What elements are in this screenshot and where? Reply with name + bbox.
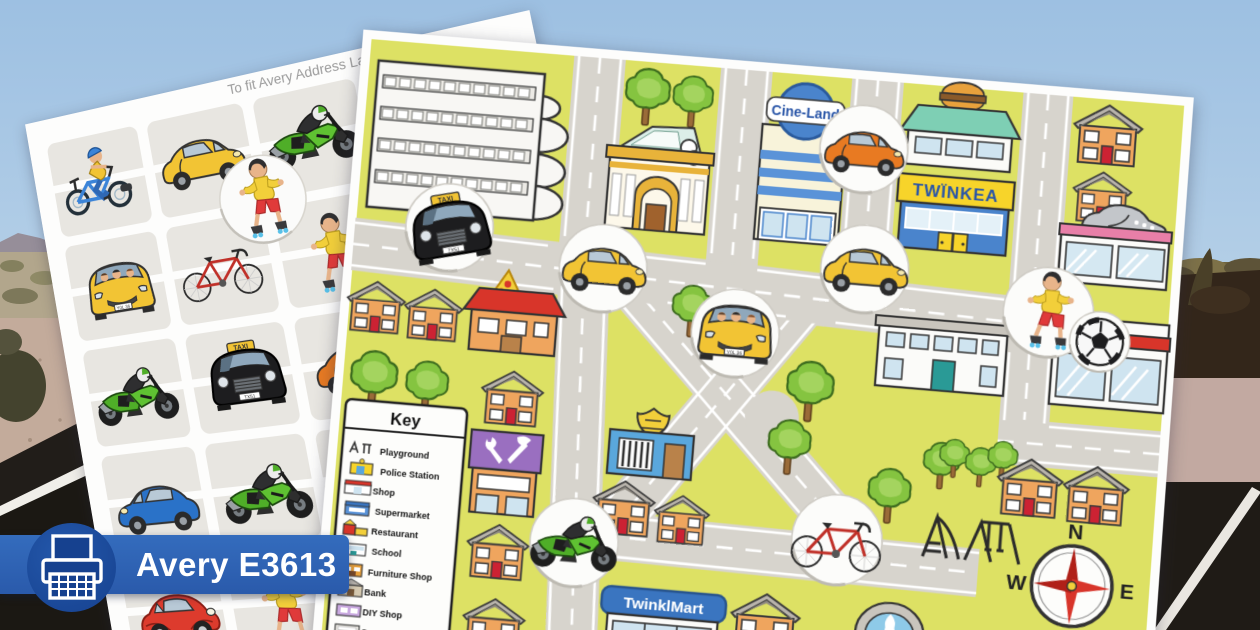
svg-text:Bank: Bank xyxy=(364,587,387,599)
svg-text:Shop: Shop xyxy=(372,486,396,498)
svg-text:Key: Key xyxy=(390,410,422,431)
svg-text:W: W xyxy=(1005,570,1027,595)
svg-text:E: E xyxy=(1119,580,1135,605)
svg-text:N: N xyxy=(1067,520,1084,545)
